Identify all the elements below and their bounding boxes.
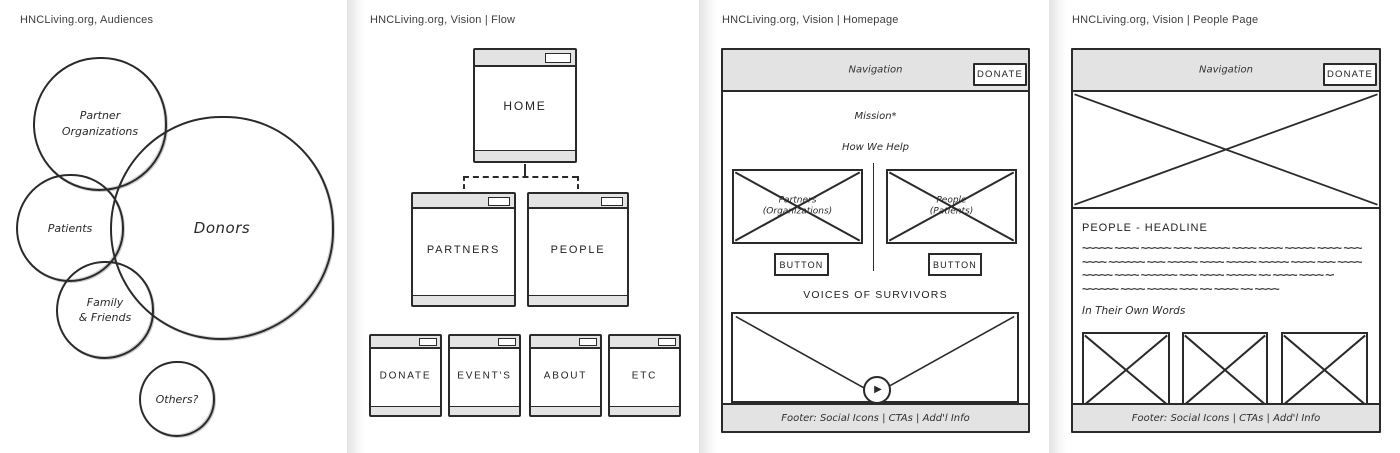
placeholder-caption: People (Patients) bbox=[888, 195, 1015, 218]
titlebar bbox=[371, 336, 440, 349]
node-label: DONATE bbox=[371, 370, 440, 381]
placeholder-text-block: ~~~~~ ~~~~ ~~~~~ ~~~ ~~~~~~ ~~~~ ~~~~ ~~… bbox=[1082, 242, 1364, 296]
node-label: PEOPLE bbox=[529, 244, 627, 256]
titlebar bbox=[610, 336, 679, 349]
connector-dashed bbox=[463, 176, 465, 189]
sitemap-node-people[interactable]: PEOPLE bbox=[527, 192, 629, 307]
nav-bar: Navigation DONATE bbox=[1073, 50, 1379, 92]
titlebar-button[interactable] bbox=[545, 53, 571, 63]
placeholder-scribble-line: ~~~~~~ ~~~~ ~~~~~ ~~~ ~~ ~~~~ ~~ ~~~~ bbox=[1082, 283, 1282, 297]
column-divider bbox=[873, 163, 874, 271]
testimonial-image-placeholder[interactable] bbox=[1281, 332, 1368, 408]
placeholder-scribble-line: ~~~~ ~~~~~~ ~~~ ~~~~~ ~~~~ ~~~~~ ~~~~~ ~… bbox=[1082, 256, 1364, 270]
audience-circle-family-friends: Family & Friends bbox=[56, 261, 154, 359]
panel-people-page: HNCLiving.org, Vision | People Page Navi… bbox=[1050, 0, 1400, 453]
hero-image-placeholder[interactable] bbox=[1073, 92, 1379, 209]
circle-label: Family & Friends bbox=[79, 295, 131, 326]
people-headline: PEOPLE - HEADLINE bbox=[1082, 222, 1208, 234]
titlebar bbox=[450, 336, 519, 349]
panel-audiences: HNCLiving.org, Audiences Partner Organiz… bbox=[0, 0, 345, 453]
play-button[interactable]: ▶ bbox=[863, 376, 891, 404]
statusbar bbox=[529, 295, 627, 305]
nav-bar: Navigation DONATE bbox=[723, 50, 1028, 92]
statusbar bbox=[450, 406, 519, 415]
placeholder-scribble-line: ~~~~~ ~~~~ ~~~~~ ~~~ ~~~~~~ ~~~~ ~~~~ ~~… bbox=[1082, 242, 1364, 256]
sitemap-node-events[interactable]: EVENT'S bbox=[448, 334, 521, 417]
play-icon: ▶ bbox=[874, 385, 882, 395]
node-label: PARTNERS bbox=[413, 244, 514, 256]
titlebar-button[interactable] bbox=[601, 197, 623, 206]
sitemap-node-etc[interactable]: ETC bbox=[608, 334, 681, 417]
audience-circle-others: Others? bbox=[139, 361, 215, 437]
placeholder-x-icon bbox=[1184, 334, 1266, 406]
testimonial-image-placeholder[interactable] bbox=[1082, 332, 1170, 408]
donate-button[interactable]: DONATE bbox=[1323, 63, 1377, 86]
node-label: ETC bbox=[610, 370, 679, 381]
panel-title: HNCLiving.org, Vision | People Page bbox=[1072, 14, 1258, 26]
node-label: HOME bbox=[475, 99, 575, 113]
circle-label: Partner Organizations bbox=[62, 108, 138, 140]
partners-cta-button[interactable]: BUTTON bbox=[774, 253, 829, 276]
placeholder-x-icon bbox=[1073, 92, 1379, 207]
titlebar bbox=[531, 336, 600, 349]
connector-dashed bbox=[463, 176, 578, 178]
panel-title: HNCLiving.org, Vision | Homepage bbox=[722, 14, 899, 26]
titlebar bbox=[475, 50, 575, 67]
node-label: ABOUT bbox=[531, 370, 600, 381]
footer-label: Footer: Social Icons | CTAs | Add'l Info bbox=[781, 413, 970, 424]
titlebar-button[interactable] bbox=[498, 338, 516, 346]
footer-bar: Footer: Social Icons | CTAs | Add'l Info bbox=[723, 403, 1028, 431]
circle-label: Patients bbox=[48, 222, 93, 235]
homepage-wireframe: Navigation DONATE Mission* How We Help P… bbox=[721, 48, 1030, 433]
people-image-placeholder[interactable]: People (Patients) bbox=[886, 169, 1017, 244]
video-placeholder[interactable]: ▶ bbox=[731, 312, 1019, 403]
titlebar-button[interactable] bbox=[419, 338, 437, 346]
sitemap-node-donate[interactable]: DONATE bbox=[369, 334, 442, 417]
people-cta-button[interactable]: BUTTON bbox=[928, 253, 982, 276]
partners-image-placeholder[interactable]: Partners (Organizations) bbox=[732, 169, 863, 244]
footer-label: Footer: Social Icons | CTAs | Add'l Info bbox=[1132, 413, 1321, 424]
titlebar-button[interactable] bbox=[488, 197, 510, 206]
placeholder-scribble-line: ~~~~~ ~~~~ ~~~~~~ ~~~ ~~~~ ~~~~~ ~~ ~~~~… bbox=[1082, 269, 1334, 283]
titlebar-button[interactable] bbox=[658, 338, 676, 346]
placeholder-x-icon bbox=[1084, 334, 1168, 406]
sitemap-node-home[interactable]: HOME bbox=[473, 48, 577, 163]
node-label: EVENT'S bbox=[450, 370, 519, 381]
sitemap-node-partners[interactable]: PARTNERS bbox=[411, 192, 516, 307]
titlebar bbox=[529, 194, 627, 209]
statusbar bbox=[531, 406, 600, 415]
sitemap-node-about[interactable]: ABOUT bbox=[529, 334, 602, 417]
panel-title: HNCLiving.org, Audiences bbox=[20, 14, 153, 26]
donate-button[interactable]: DONATE bbox=[973, 63, 1027, 86]
circle-label: Donors bbox=[194, 219, 250, 237]
connector-dashed bbox=[577, 176, 579, 189]
panel-title: HNCLiving.org, Vision | Flow bbox=[370, 14, 515, 26]
testimonial-image-placeholder[interactable] bbox=[1182, 332, 1268, 408]
panel-flow: HNCLiving.org, Vision | Flow HOME PARTNE… bbox=[345, 0, 700, 453]
circle-label: Others? bbox=[156, 393, 199, 406]
placeholder-x-icon bbox=[1283, 334, 1366, 406]
people-page-wireframe: Navigation DONATE PEOPLE - HEADLINE ~~~~… bbox=[1071, 48, 1381, 433]
titlebar bbox=[413, 194, 514, 209]
statusbar bbox=[610, 406, 679, 415]
footer-bar: Footer: Social Icons | CTAs | Add'l Info bbox=[1073, 403, 1379, 431]
placeholder-caption: Partners (Organizations) bbox=[734, 195, 861, 218]
how-we-help-heading: How We Help bbox=[723, 142, 1028, 153]
own-words-heading: In Their Own Words bbox=[1082, 305, 1185, 317]
mission-heading: Mission* bbox=[723, 111, 1028, 122]
statusbar bbox=[475, 150, 575, 161]
panel-homepage: HNCLiving.org, Vision | Homepage Navigat… bbox=[700, 0, 1050, 453]
voices-heading: VOICES OF SURVIVORS bbox=[723, 289, 1028, 301]
connector-dashed bbox=[524, 164, 526, 176]
titlebar-button[interactable] bbox=[579, 338, 597, 346]
statusbar bbox=[413, 295, 514, 305]
wireframe-board: HNCLiving.org, Audiences Partner Organiz… bbox=[0, 0, 1400, 453]
statusbar bbox=[371, 406, 440, 415]
